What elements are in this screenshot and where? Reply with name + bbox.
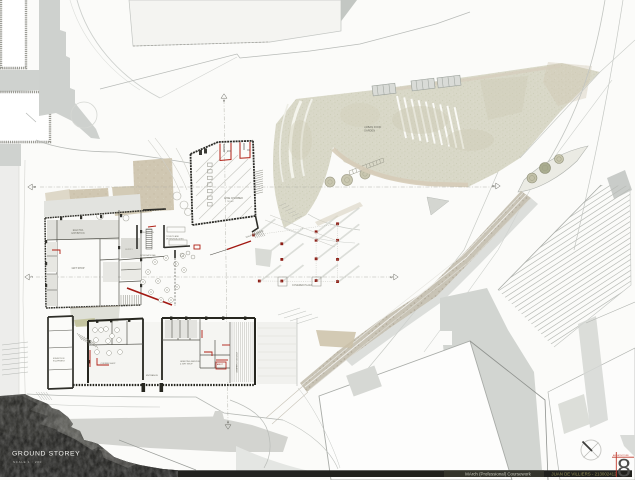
svg-text:ENTRANCE: ENTRANCE xyxy=(146,374,159,377)
svg-text:EXHIBITION: EXHIBITION xyxy=(71,233,84,235)
svg-text:MArch (Professional) Coursewor: MArch (Professional) Coursework xyxy=(465,471,531,476)
svg-text:& GIFT SHOP: & GIFT SHOP xyxy=(180,364,193,366)
svg-text:ELECTRA: ELECTRA xyxy=(73,229,84,232)
svg-text:GROUND STOREY: GROUND STOREY xyxy=(12,451,80,458)
svg-text:TICKETS AND: TICKETS AND xyxy=(166,235,180,238)
svg-text:8: 8 xyxy=(617,455,631,480)
svg-text:WINE CHAMBER: WINE CHAMBER xyxy=(224,197,243,200)
svg-text:743 m2: 743 m2 xyxy=(227,201,235,203)
svg-text:COVERED PLAZA: COVERED PLAZA xyxy=(292,284,312,287)
svg-text:RECEPTION: RECEPTION xyxy=(140,258,152,260)
svg-text:SUPPLY: SUPPLY xyxy=(125,249,133,251)
svg-text:VISITORS CHAMBER: VISITORS CHAMBER xyxy=(235,352,238,373)
svg-text:SCALE 1 : 200: SCALE 1 : 200 xyxy=(13,460,42,464)
svg-text:GIFT SHOP: GIFT SHOP xyxy=(72,267,85,270)
svg-text:EQUIPMENT: EQUIPMENT xyxy=(53,361,66,363)
svg-text:JUAN DE VILLIERS - 213002412: JUAN DE VILLIERS - 213002412 xyxy=(551,471,617,476)
svg-text:INTERNATIONAL: INTERNATIONAL xyxy=(140,254,157,257)
svg-text:ABLUT: ABLUT xyxy=(217,363,224,366)
svg-text:MUSEUM ACCESS: MUSEUM ACCESS xyxy=(166,238,184,241)
svg-text:GARDEN: GARDEN xyxy=(364,128,375,132)
